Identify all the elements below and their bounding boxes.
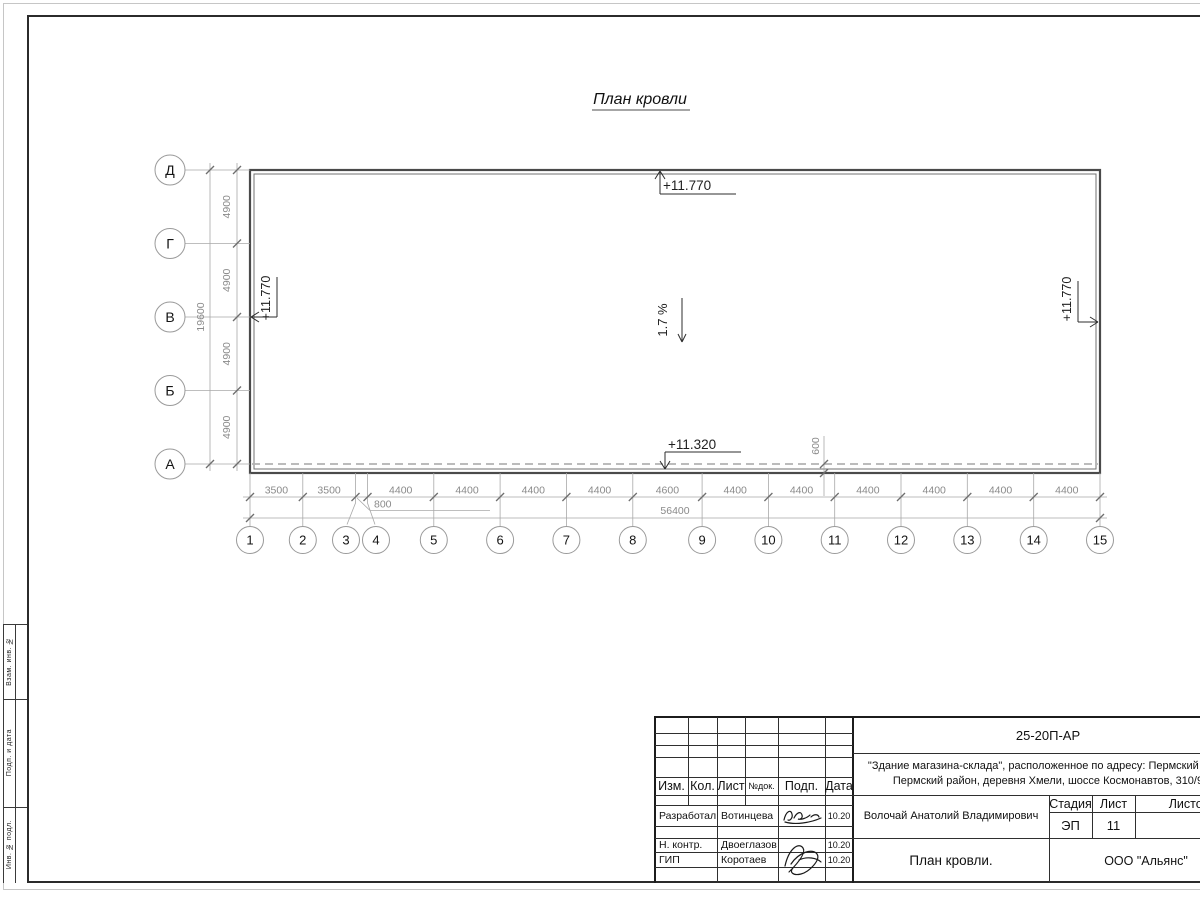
dim-total-label: 19600 xyxy=(195,302,207,331)
row-axis-bubbles: Д Г В Б А xyxy=(155,155,185,479)
tb-approver: Волочай Анатолий Владимирович xyxy=(853,795,1049,838)
side-stamp-label: Взам. инв. № xyxy=(6,637,13,686)
signature-votintseva xyxy=(780,806,824,826)
dim-label: 4600 xyxy=(656,485,680,497)
tb-header-kol: Кол. xyxy=(688,777,717,795)
side-stamp-label: Инв. № подл. xyxy=(6,820,13,869)
side-stamp-divider xyxy=(15,624,16,883)
tb-date: 10.20 xyxy=(825,805,853,826)
elevation-value: +11.770 xyxy=(1060,277,1074,322)
side-stamp-label: Подп. и дата xyxy=(6,729,13,776)
dim-total-label: 56400 xyxy=(660,505,689,517)
tb-header-podp: Подп. xyxy=(778,777,825,795)
col-axis-label: 14 xyxy=(1026,533,1040,548)
col-axis-label: 1 xyxy=(246,533,253,548)
side-stamp-cell-inv: Инв. № подл. xyxy=(3,807,15,883)
dim-label: 4400 xyxy=(724,485,748,497)
tb-project-line2: Пермский район, деревня Хмели, шоссе Кос… xyxy=(893,774,1200,789)
plan-title: План кровли xyxy=(593,91,687,108)
tb-drawing-name: План кровли. xyxy=(853,838,1049,883)
col-axis-label: 10 xyxy=(761,533,775,548)
dim-label: 800 xyxy=(374,499,392,511)
col-axis-label: 6 xyxy=(496,533,503,548)
tb-project-desc: "Здание магазина-склада", расположенное … xyxy=(853,753,1200,795)
tb-sheet-label: Лист xyxy=(1092,795,1135,812)
side-stamp-cell-podp: Подп. и дата xyxy=(3,699,15,807)
bottom-dimension-labels: 3500 3500 4400 4400 4400 4400 4600 4400 … xyxy=(265,485,1079,518)
tb-role: Н. контр. xyxy=(655,838,717,852)
row-axis-label: Г xyxy=(166,236,174,252)
tb-role: ГИП xyxy=(655,852,717,867)
col-axis-label: 8 xyxy=(629,533,636,548)
row-axis-label: В xyxy=(165,309,174,325)
tb-date: 10.20 xyxy=(825,852,853,867)
dim-label: 4900 xyxy=(221,415,233,439)
building-outline-outer xyxy=(250,170,1100,473)
paper-edge-bottom xyxy=(3,889,1200,890)
tb-name: Вотинцева xyxy=(717,805,778,826)
dim-label: 4400 xyxy=(989,485,1013,497)
dim-label: 4400 xyxy=(856,485,880,497)
tb-name: Коротаев xyxy=(717,852,778,867)
drawing-sheet: Взам. инв. № Подп. и дата Инв. № подл. П… xyxy=(0,0,1200,900)
tb-sheets-value xyxy=(1135,812,1200,838)
dim-label: 4900 xyxy=(221,195,233,219)
roof-plan-drawing: План кровли 4900 xyxy=(0,0,1200,630)
elevation-value: +11.770 xyxy=(663,178,711,193)
dim-label: 4400 xyxy=(923,485,947,497)
tb-company: ООО "Альянс" xyxy=(1049,838,1200,883)
dim-label: 4400 xyxy=(790,485,814,497)
elevation-value: +11.770 xyxy=(259,276,273,321)
tb-stage-label: Стадия xyxy=(1049,795,1092,812)
col-axis-label: 9 xyxy=(698,533,705,548)
row-axis-label: А xyxy=(165,456,175,472)
col-axis-label: 3 xyxy=(342,533,349,548)
dim-label: 4400 xyxy=(522,485,546,497)
tb-header-ndok: №док. xyxy=(745,777,778,795)
col-axis-label: 13 xyxy=(960,533,974,548)
row-axis-label: Д xyxy=(165,162,175,178)
tb-date: 10.20 xyxy=(825,838,853,852)
col-axis-label: 4 xyxy=(372,533,379,548)
row-axis-label: Б xyxy=(165,383,174,399)
side-stamp-cell-vzam: Взам. инв. № xyxy=(3,624,15,699)
slope-value: 1.7 % xyxy=(655,303,670,337)
col-axis-label: 11 xyxy=(828,533,842,548)
dim-label: 4400 xyxy=(588,485,612,497)
col-axis-label: 7 xyxy=(563,533,570,548)
tb-header-izm: Изм. xyxy=(655,777,688,795)
col-axis-label: 12 xyxy=(894,533,908,548)
dim-label: 3500 xyxy=(265,485,289,497)
dim-label: 600 xyxy=(810,437,822,455)
elevation-value: +11.320 xyxy=(668,437,716,452)
tb-header-data: Дата xyxy=(825,777,853,795)
col-axis-label: 15 xyxy=(1093,533,1107,548)
dim-label: 4400 xyxy=(455,485,479,497)
tb-sheets-label: Листов xyxy=(1135,795,1200,812)
tb-stage-value: ЭП xyxy=(1049,812,1092,838)
column-axis-bubbles: 1 2 3 4 5 6 7 8 9 10 11 12 13 14 15 xyxy=(237,527,1114,554)
dim-label: 4400 xyxy=(1055,485,1079,497)
col-axis-label: 2 xyxy=(299,533,306,548)
tb-name: Двоеглазов xyxy=(717,838,778,852)
col-axis-label: 5 xyxy=(430,533,437,548)
dim-label: 4900 xyxy=(221,268,233,292)
tb-header-list: Лист xyxy=(717,777,745,795)
tb-project-line1: "Здание магазина-склада", расположенное … xyxy=(868,759,1200,774)
dim-label: 4400 xyxy=(389,485,413,497)
signature-gip-nkontr xyxy=(778,838,826,878)
dim-label: 3500 xyxy=(317,485,341,497)
tb-doc-code: 25-20П-АР xyxy=(853,717,1200,753)
tb-role: Разработал xyxy=(655,805,717,826)
dim-label: 4900 xyxy=(221,342,233,366)
tb-sheet-value: 11 xyxy=(1092,812,1135,838)
